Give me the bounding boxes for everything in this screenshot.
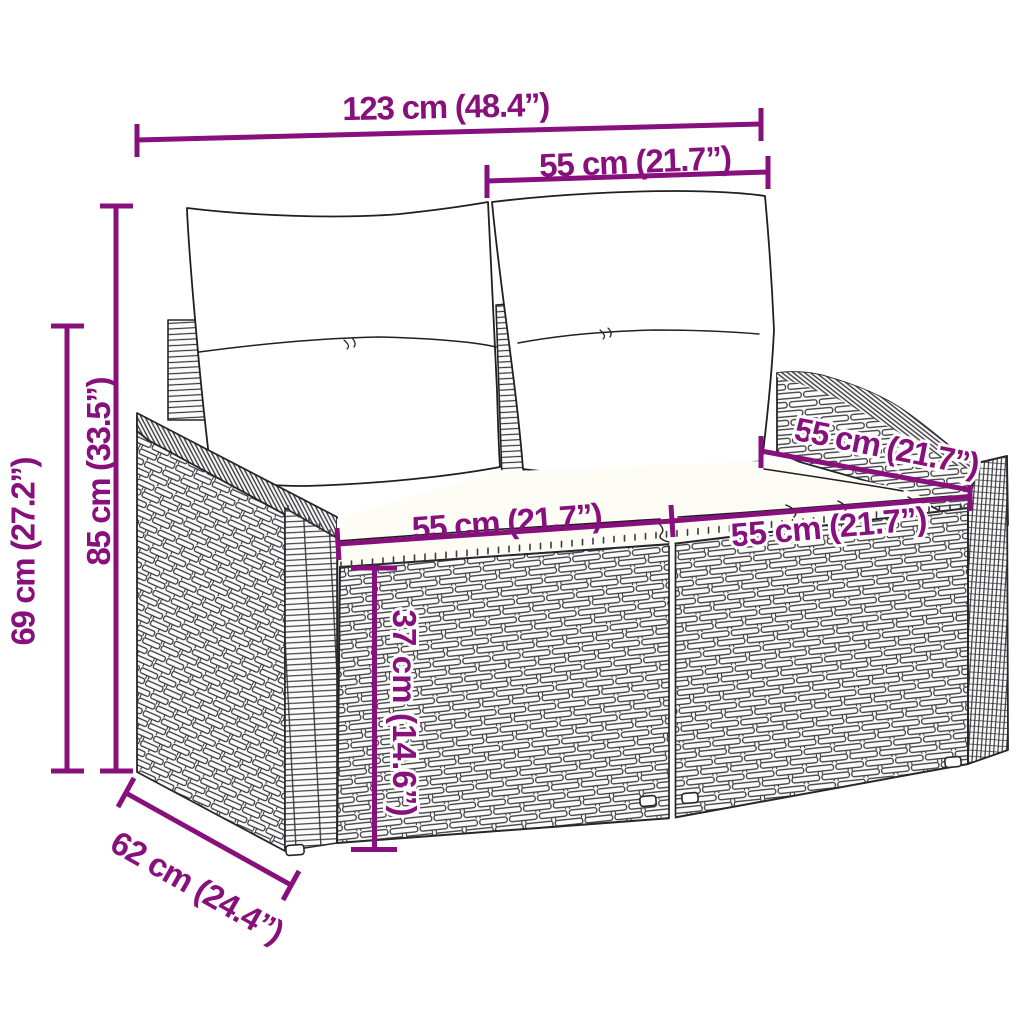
svg-text:123 cm (48.4”): 123 cm (48.4”) [342,86,551,127]
svg-text:55 cm (21.7”): 55 cm (21.7”) [538,139,732,184]
svg-text:37 cm (14.6”): 37 cm (14.6”) [386,610,423,817]
svg-text:69 cm (27.2”): 69 cm (27.2”) [5,457,42,646]
svg-text:62 cm (24.4”): 62 cm (24.4”) [105,823,291,950]
svg-text:85 cm (33.5”): 85 cm (33.5”) [80,377,117,566]
